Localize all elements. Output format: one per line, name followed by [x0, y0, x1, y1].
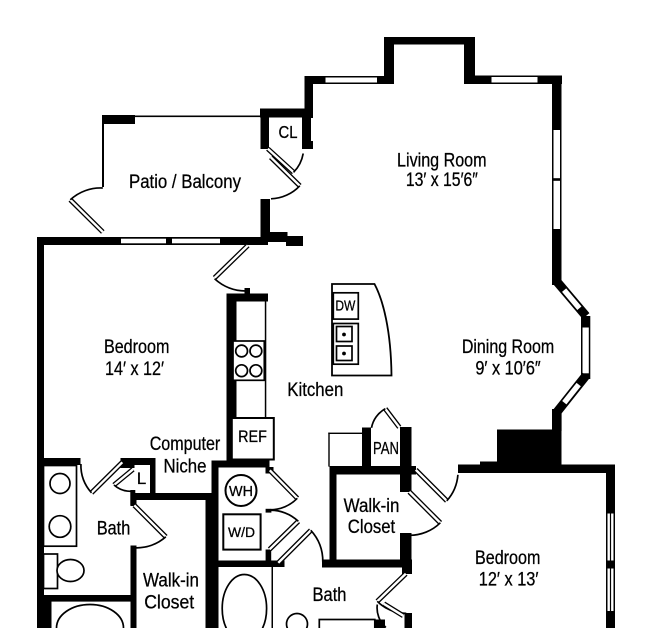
- svg-text:Bath: Bath: [313, 585, 347, 606]
- svg-text:Niche: Niche: [164, 456, 207, 477]
- svg-text:Bedroom: Bedroom: [104, 337, 170, 358]
- svg-text:Closet: Closet: [348, 517, 396, 538]
- svg-text:9′ x 10′6″: 9′ x 10′6″: [475, 358, 541, 379]
- svg-text:Computer: Computer: [150, 434, 221, 455]
- svg-text:13′ x 15′6″: 13′ x 15′6″: [406, 170, 478, 191]
- svg-text:DW: DW: [335, 299, 355, 315]
- svg-text:Walk-in: Walk-in: [344, 496, 400, 517]
- svg-text:Living Room: Living Room: [397, 151, 487, 172]
- svg-text:PAN: PAN: [373, 438, 399, 458]
- svg-text:Dining Room: Dining Room: [462, 337, 554, 358]
- svg-text:12′ x 13′: 12′ x 13′: [479, 569, 539, 590]
- svg-text:L: L: [137, 469, 146, 488]
- svg-text:CL: CL: [279, 122, 298, 142]
- svg-text:Kitchen: Kitchen: [287, 380, 343, 401]
- svg-text:Bedroom: Bedroom: [475, 548, 540, 569]
- svg-text:Walk-in: Walk-in: [143, 571, 199, 592]
- svg-text:14′ x 12′: 14′ x 12′: [105, 359, 164, 380]
- svg-text:Closet: Closet: [144, 593, 195, 614]
- svg-text:WH: WH: [229, 483, 253, 500]
- svg-text:W/D: W/D: [228, 525, 255, 540]
- svg-text:Patio / Balcony: Patio / Balcony: [129, 172, 241, 193]
- svg-text:Bath: Bath: [97, 519, 131, 540]
- svg-text:REF: REF: [238, 428, 267, 446]
